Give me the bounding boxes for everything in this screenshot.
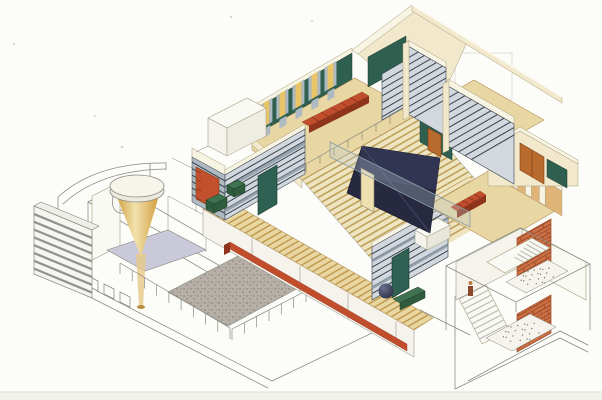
scanned-drawing-page <box>0 0 602 400</box>
building-cutaway-illustration <box>0 0 602 400</box>
light-spot <box>137 305 145 309</box>
dark-sphere-sculpture <box>379 284 394 299</box>
skylight-disc <box>110 175 164 197</box>
scan-edge-band <box>0 392 602 400</box>
person-figure <box>468 281 473 296</box>
